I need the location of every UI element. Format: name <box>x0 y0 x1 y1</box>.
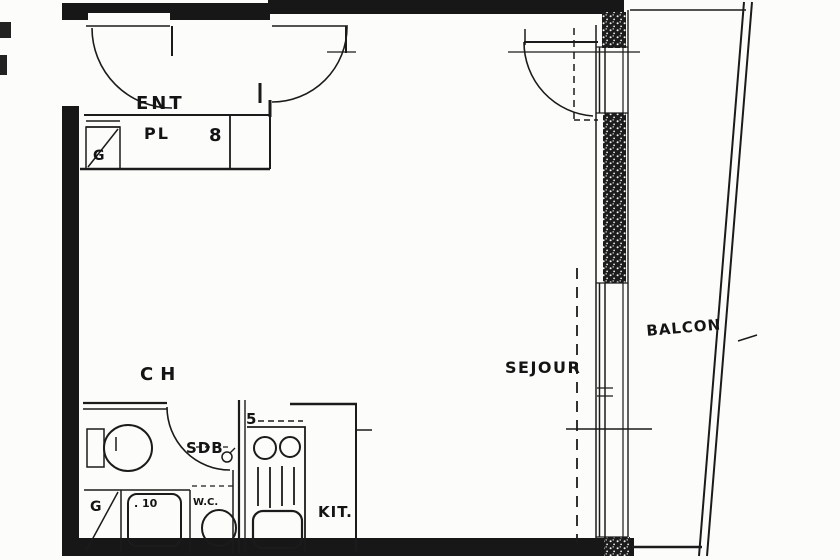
left-wall <box>62 106 79 556</box>
floor-plan-page: ENT PL 8 G CH SDB G . 10 W.C. 5 KIT. SEJ… <box>0 0 840 560</box>
room-label-sdb: SDB <box>186 439 224 457</box>
edge-wall-fragment <box>0 55 7 75</box>
entrance-opening <box>88 13 170 21</box>
room-label-pl: PL <box>144 124 170 143</box>
top-wall-right <box>268 0 624 14</box>
room-label-kit: KIT. <box>318 503 353 521</box>
room-label-sejour: SEJOUR <box>505 358 581 377</box>
room-label-ent: ENT <box>136 93 185 114</box>
wc-label: W.C. <box>193 497 218 508</box>
closet-label-g-bottom: G <box>90 499 102 515</box>
floor-plan-canvas: ENT PL 8 G CH SDB G . 10 W.C. 5 KIT. SEJ… <box>0 0 840 560</box>
wall-pier <box>602 12 626 48</box>
closet-label-g-top: G <box>93 148 105 164</box>
shower-mark: . 10 <box>134 497 158 510</box>
wall-pier <box>603 113 626 283</box>
edge-wall-fragment <box>0 22 11 38</box>
mark-8: 8 <box>209 125 222 146</box>
wall-pier <box>604 537 630 556</box>
mark-5: 5 <box>246 410 256 428</box>
room-label-ch: CH <box>140 364 182 385</box>
